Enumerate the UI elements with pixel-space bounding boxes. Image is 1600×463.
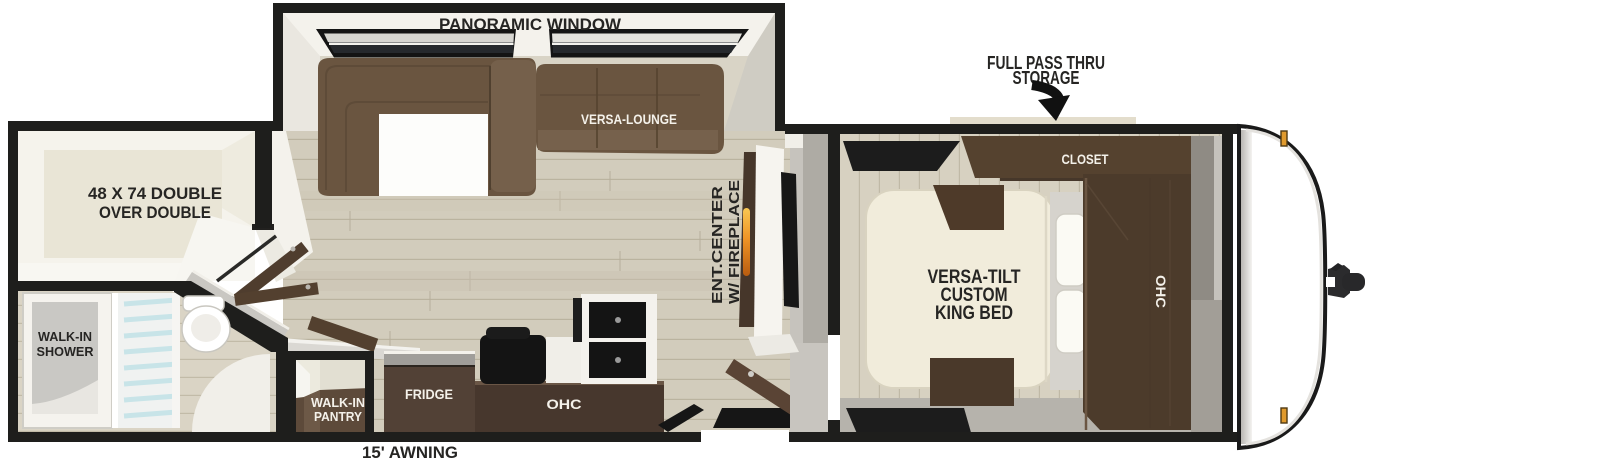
svg-text:W/ FIREPLACE: W/ FIREPLACE bbox=[726, 180, 743, 304]
svg-text:WALK-IN: WALK-IN bbox=[311, 395, 365, 410]
svg-text:SHOWER: SHOWER bbox=[37, 345, 94, 359]
svg-text:OHC: OHC bbox=[1153, 275, 1169, 308]
svg-text:48 X 74 DOUBLE: 48 X 74 DOUBLE bbox=[88, 184, 222, 203]
svg-text:CLOSET: CLOSET bbox=[1062, 151, 1109, 167]
svg-text:15' AWNING: 15' AWNING bbox=[362, 443, 458, 462]
svg-text:ENT.CENTER: ENT.CENTER bbox=[709, 186, 726, 304]
svg-text:PANORAMIC WINDOW: PANORAMIC WINDOW bbox=[439, 16, 621, 34]
svg-text:KING BED: KING BED bbox=[935, 303, 1013, 324]
svg-text:WALK-IN: WALK-IN bbox=[38, 330, 92, 344]
svg-text:PANTRY: PANTRY bbox=[314, 409, 362, 424]
svg-text:FRIDGE: FRIDGE bbox=[405, 386, 453, 402]
svg-text:OVER DOUBLE: OVER DOUBLE bbox=[99, 203, 211, 222]
svg-text:VERSA-LOUNGE: VERSA-LOUNGE bbox=[581, 111, 677, 127]
svg-text:OHC: OHC bbox=[547, 396, 582, 412]
